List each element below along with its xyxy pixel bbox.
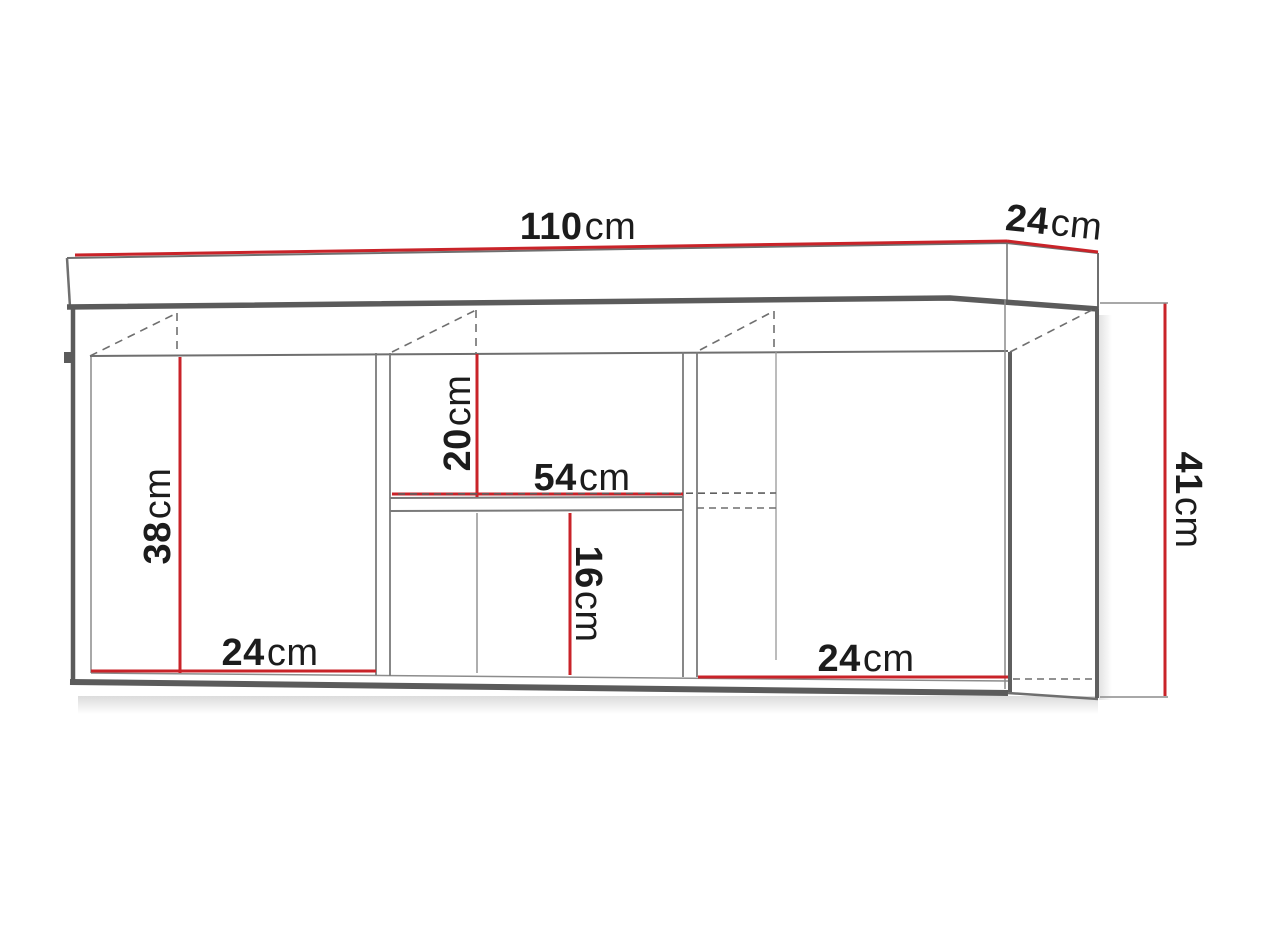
cabinet-line-drawing	[0, 0, 1267, 950]
dim-label-middle-upper-height: 20cm	[439, 375, 477, 472]
dim-label-middle-lower-height: 16cm	[569, 546, 607, 643]
middle-shelf	[390, 497, 683, 511]
dim-label-top-depth: 24cm	[1004, 199, 1104, 247]
dim-label-left-height: 38cm	[139, 468, 177, 565]
dim-label-total-width: 110cm	[520, 208, 636, 246]
dim-label-side-height: 41cm	[1169, 452, 1207, 549]
dim-label-shelf-width: 54cm	[534, 459, 631, 497]
dim-label-left-width: 24cm	[222, 634, 319, 672]
furniture-dimension-diagram: 110cm 24cm 41cm 38cm 24cm 20cm 54cm 16cm…	[0, 0, 1267, 950]
dim-label-right-width: 24cm	[818, 640, 915, 678]
